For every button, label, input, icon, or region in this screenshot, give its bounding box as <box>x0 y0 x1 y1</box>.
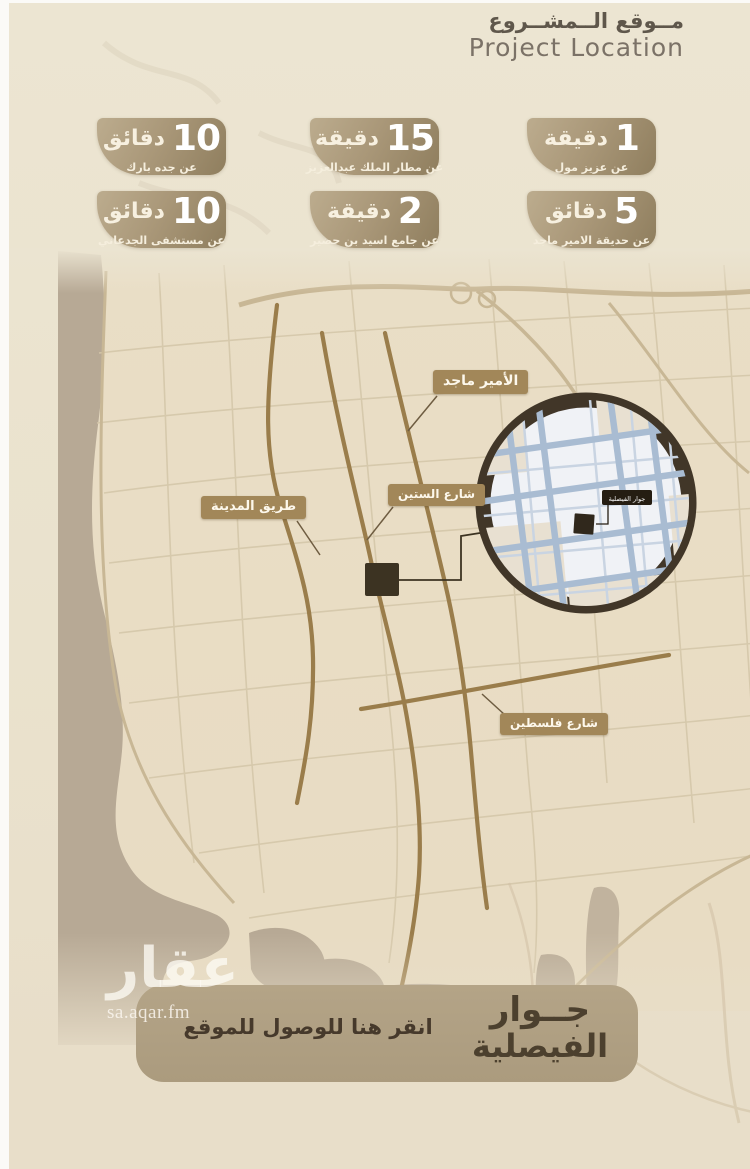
project-name: جــوار الفيصلية <box>464 991 616 1065</box>
badge-minutes-unit: دقيقة <box>544 128 608 150</box>
badge-value-row: 10 دقائق <box>103 121 220 157</box>
road-label-prince-majed: الأمير ماجد <box>433 370 528 394</box>
time-badge-prince-majed-park: 5 دقائق عن حديقة الامير ماجد <box>527 191 656 248</box>
badge-value-row: 5 دقائق <box>545 194 638 230</box>
road-label-madinah-road: طريق المدينة <box>201 496 306 519</box>
map-fade-top <box>9 248 750 293</box>
time-badge-airport: 15 دقيقة عن مطار الملك عبدالعزيز <box>310 118 439 175</box>
badge-minutes-value: 5 <box>614 194 638 230</box>
badge-minutes-value: 15 <box>386 121 434 157</box>
badge-minutes-unit: دقائق <box>545 201 607 223</box>
inset-project-marker <box>573 513 594 534</box>
badge-subtitle: عن جامع اسيد بن حضير <box>310 234 439 247</box>
badge-subtitle: عن مستشفى الجدعاني <box>98 234 225 247</box>
time-badge-jeddah-park: 10 دقائق عن جده بارك <box>97 118 226 175</box>
project-name-line1: جــوار <box>464 991 616 1029</box>
watermark: عقار sa.aqar.fm <box>107 941 239 1022</box>
project-name-line2: الفيصلية <box>464 1029 616 1065</box>
badge-subtitle: عن جده بارك <box>126 161 197 174</box>
badge-minutes-value: 2 <box>398 194 422 230</box>
time-badge-hospital: 10 دقائق عن مستشفى الجدعاني <box>97 191 226 248</box>
badge-minutes-unit: دقائق <box>103 201 165 223</box>
project-marker <box>365 563 399 596</box>
watermark-logo-arabic: عقار <box>107 941 239 997</box>
badge-minutes-unit: دقيقة <box>315 128 379 150</box>
road-label-palestine-street: شارع فلسطين <box>500 713 608 735</box>
badge-subtitle: عن عزيز مول <box>555 161 629 174</box>
badge-value-row: 2 دقيقة <box>327 194 422 230</box>
page-title-english: Project Location <box>469 34 684 63</box>
badge-minutes-value: 1 <box>615 121 639 157</box>
road-label-sitteen-street: شارع الستين <box>388 484 485 506</box>
badge-minutes-value: 10 <box>172 194 220 230</box>
page-header: مــوقع الــمشــروع Project Location <box>469 9 684 63</box>
badge-value-row: 10 دقائق <box>103 194 220 230</box>
badge-minutes-value: 10 <box>172 121 220 157</box>
inset-label-text: جوار الفيصلية <box>609 495 646 503</box>
badge-minutes-unit: دقيقة <box>327 201 391 223</box>
badge-value-row: 15 دقيقة <box>315 121 434 157</box>
watermark-url: sa.aqar.fm <box>107 1003 239 1022</box>
badge-value-row: 1 دقيقة <box>544 121 639 157</box>
time-badge-aziz-mall: 1 دقيقة عن عزيز مول <box>527 118 656 175</box>
badge-subtitle: عن حديقة الامير ماجد <box>533 234 650 247</box>
time-badge-mosque: 2 دقيقة عن جامع اسيد بن حضير <box>310 191 439 248</box>
image-canvas: جوار الفيصلية مــوقع الــمشــروع Project… <box>9 3 750 1158</box>
page-title-arabic: مــوقع الــمشــروع <box>469 9 684 34</box>
badge-minutes-unit: دقائق <box>103 128 165 150</box>
badge-subtitle: عن مطار الملك عبدالعزيز <box>306 161 443 174</box>
